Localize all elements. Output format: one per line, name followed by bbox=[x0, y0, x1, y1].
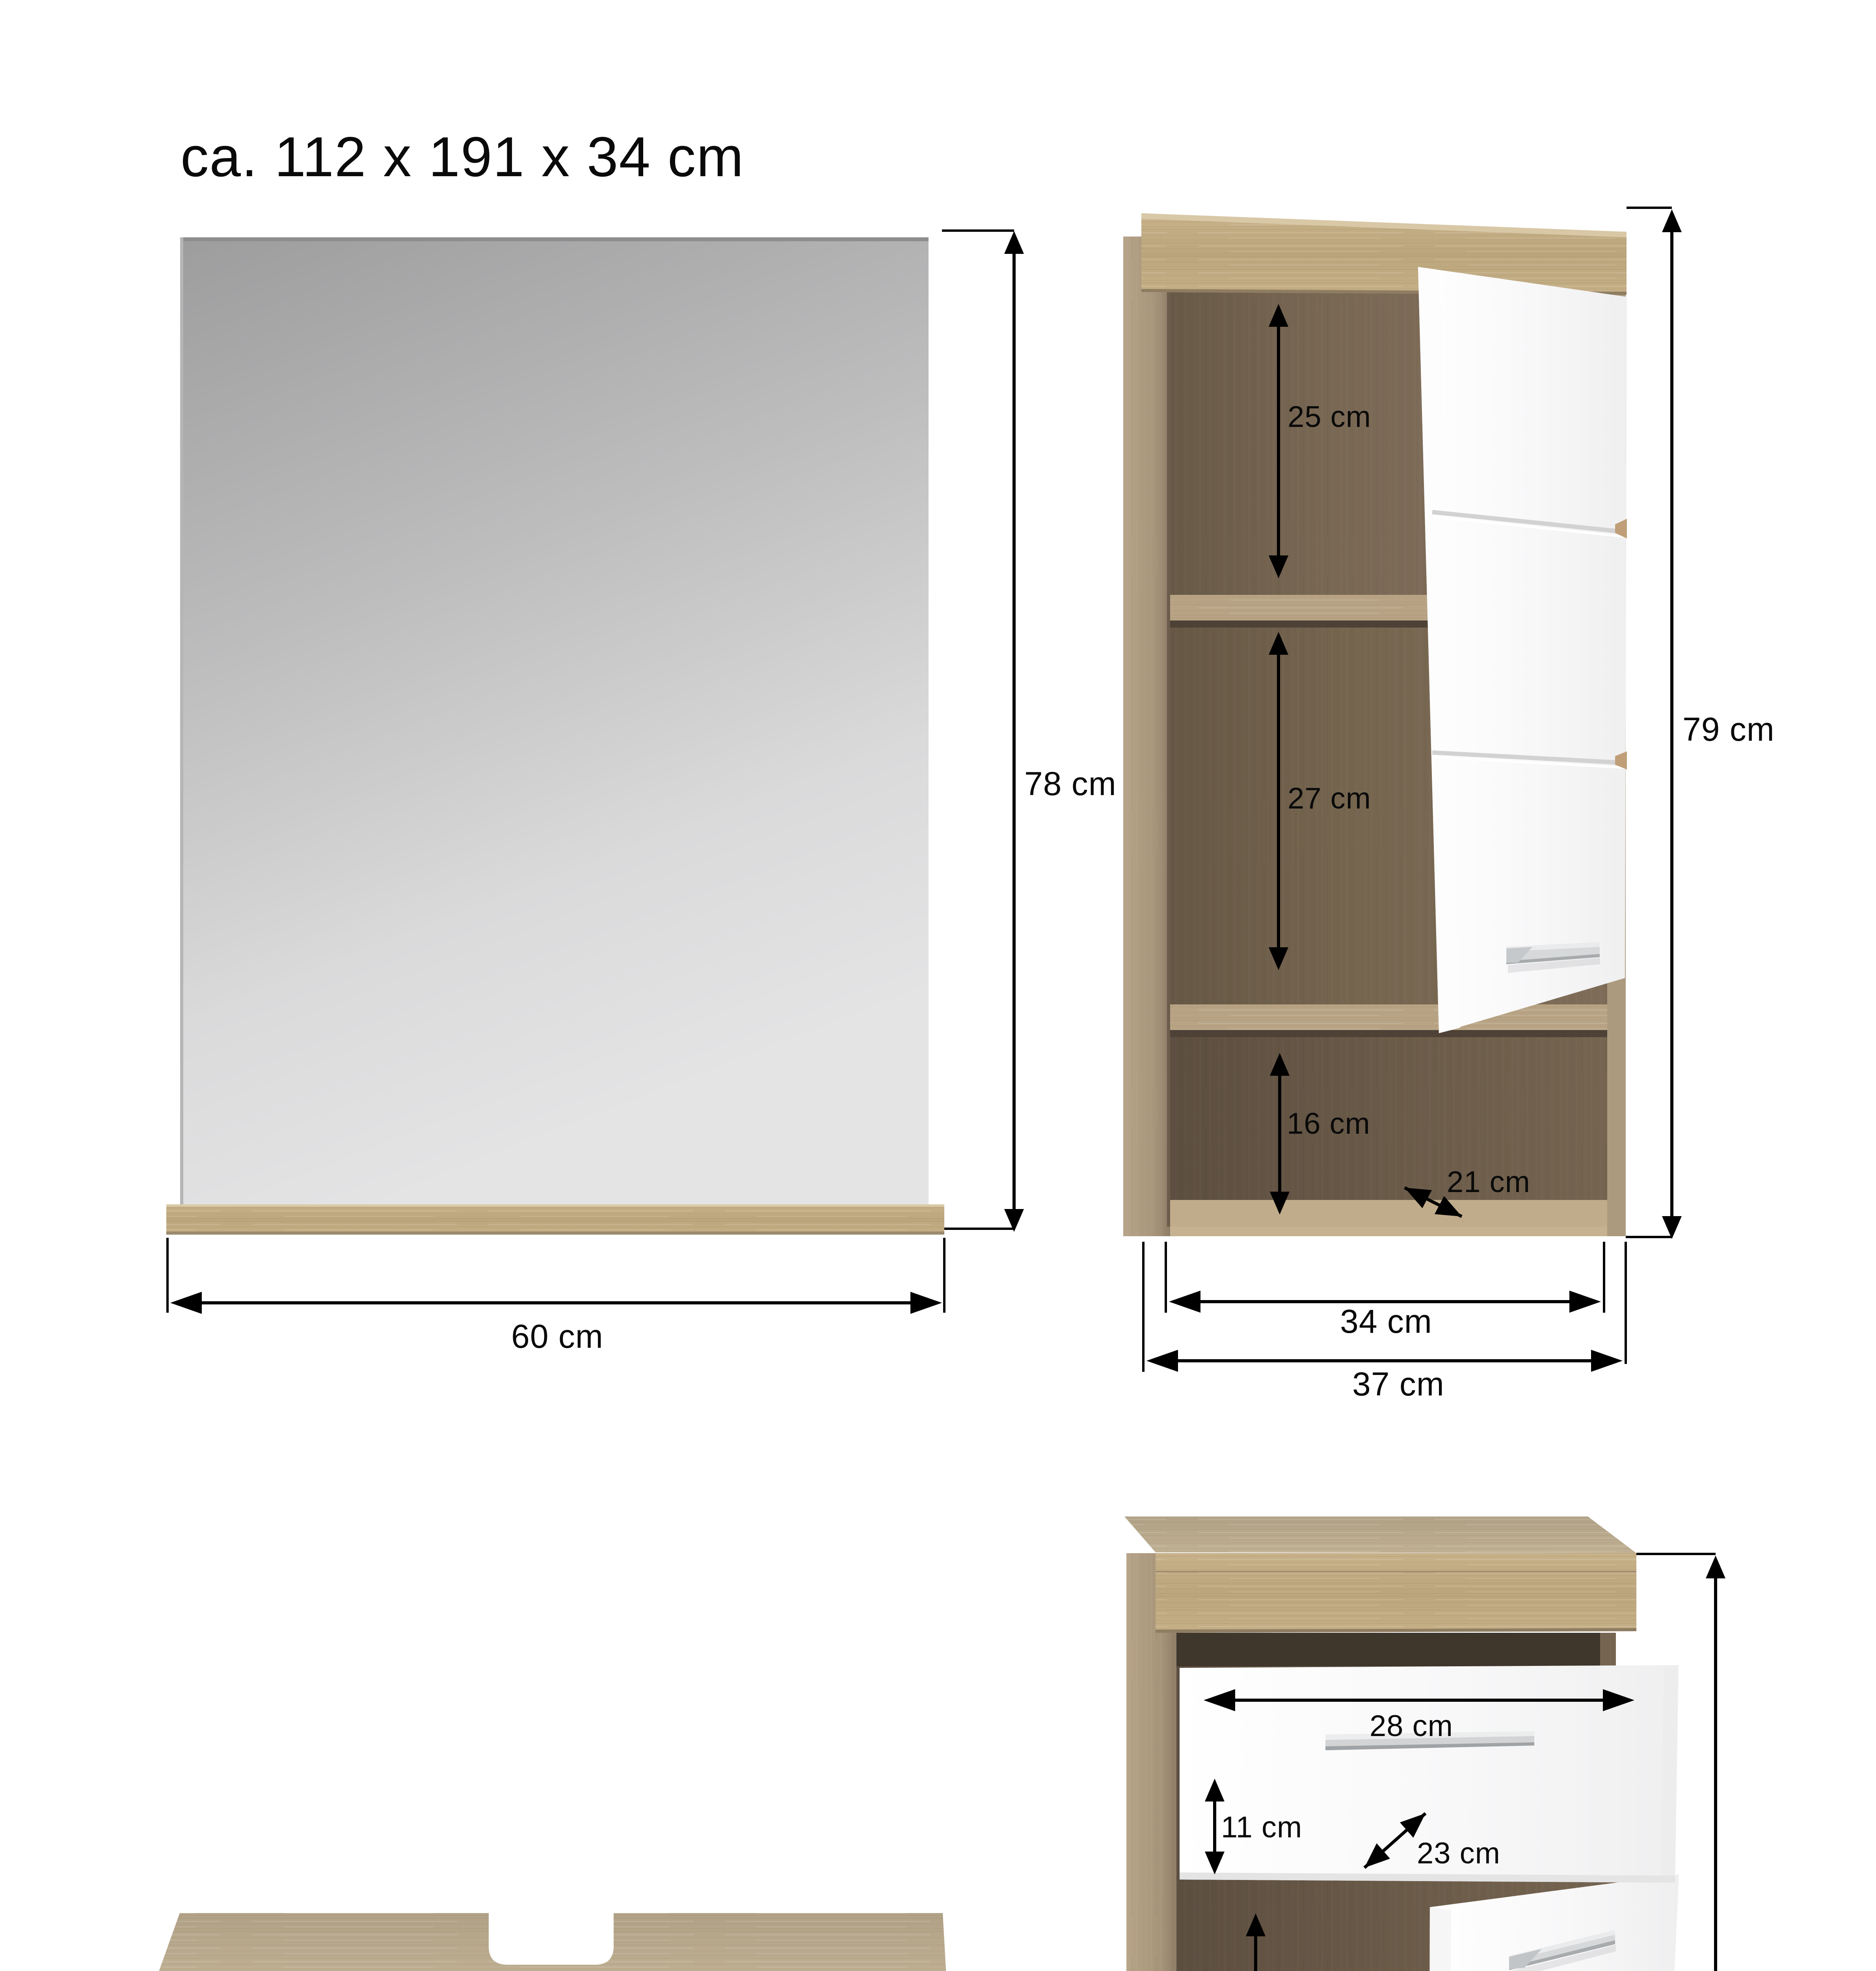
svg-text:23 cm: 23 cm bbox=[1417, 1837, 1500, 1870]
svg-text:ca. 112 x 191 x 34 cm: ca. 112 x 191 x 34 cm bbox=[181, 126, 744, 188]
svg-text:34 cm: 34 cm bbox=[1340, 1303, 1432, 1340]
svg-text:27 cm: 27 cm bbox=[1288, 782, 1371, 815]
svg-text:21 cm: 21 cm bbox=[1447, 1165, 1530, 1199]
svg-text:79 cm: 79 cm bbox=[1682, 711, 1775, 748]
svg-text:37 cm: 37 cm bbox=[1352, 1366, 1444, 1403]
svg-text:78 cm: 78 cm bbox=[1024, 765, 1117, 802]
svg-text:25 cm: 25 cm bbox=[1288, 400, 1371, 434]
svg-text:28 cm: 28 cm bbox=[1370, 1709, 1453, 1743]
svg-text:11 cm: 11 cm bbox=[1221, 1811, 1302, 1844]
svg-text:60 cm: 60 cm bbox=[511, 1318, 603, 1355]
svg-text:16 cm: 16 cm bbox=[1287, 1107, 1370, 1140]
